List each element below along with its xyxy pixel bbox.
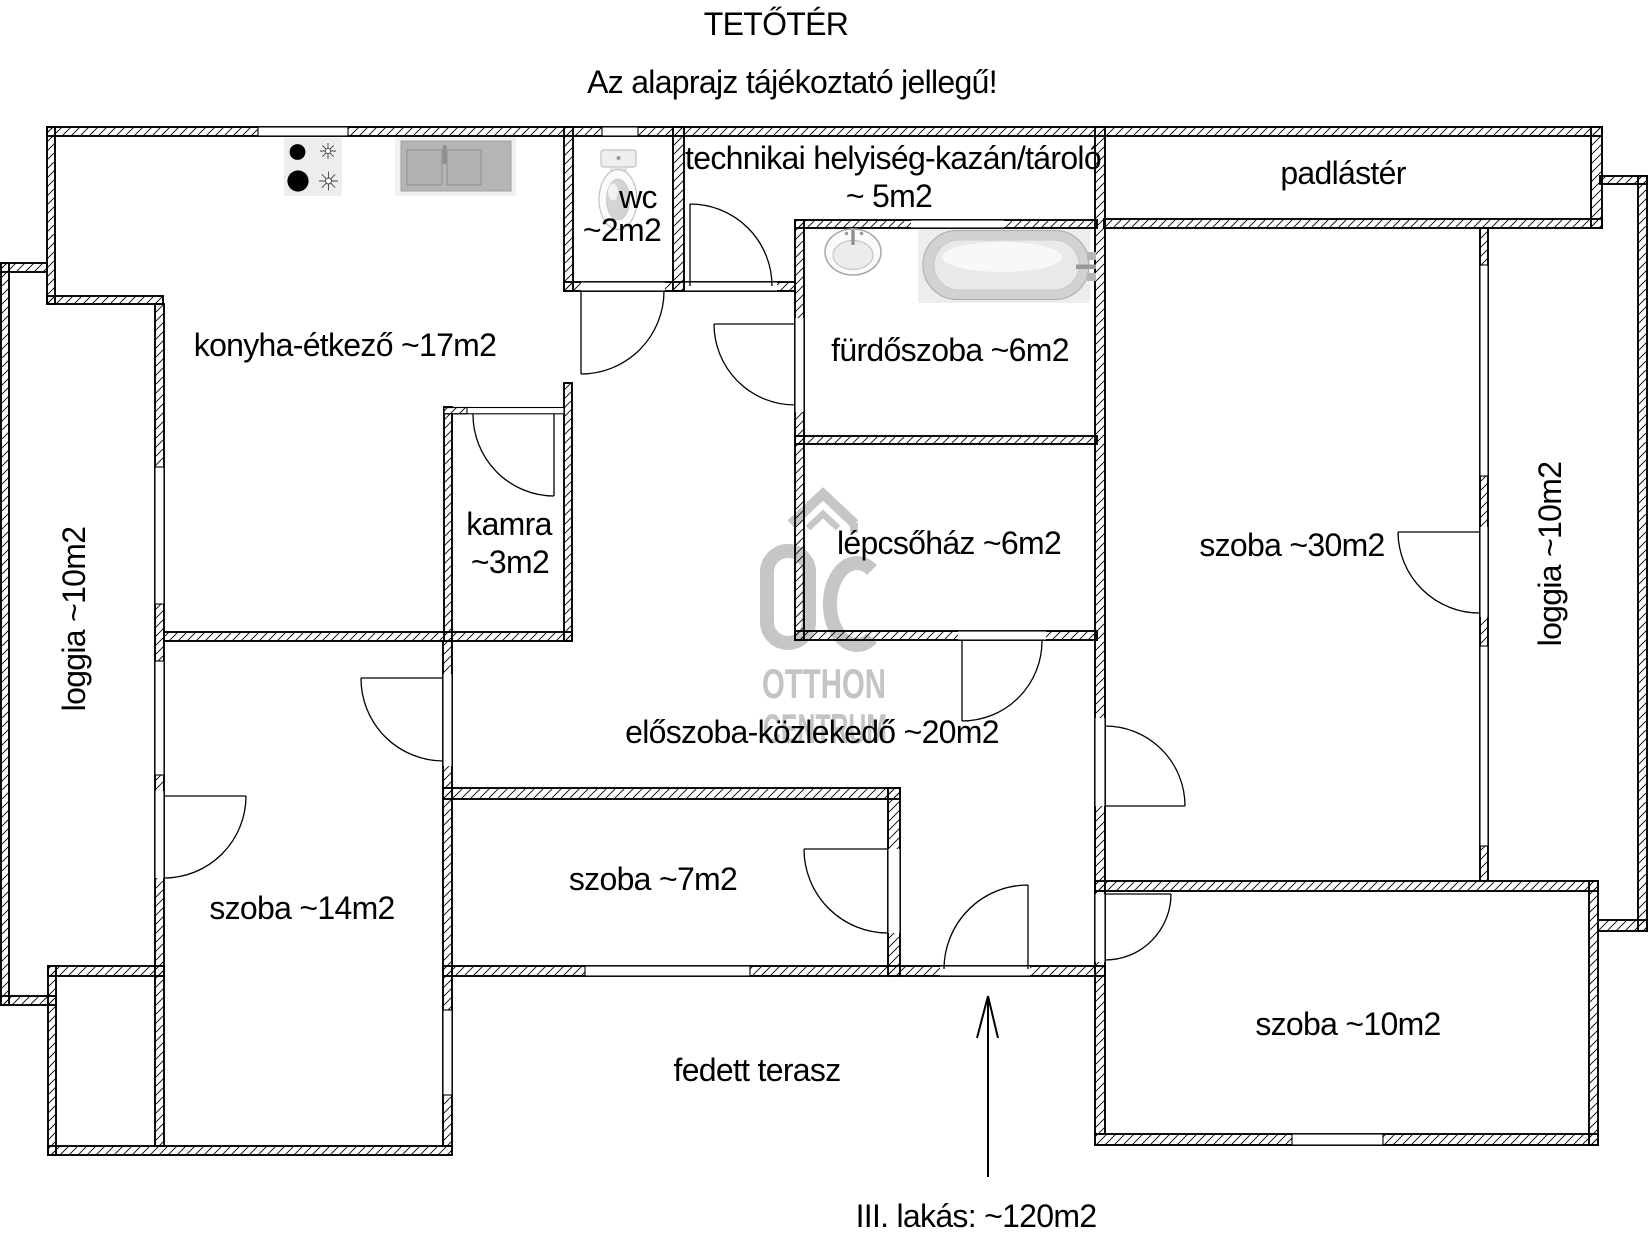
svg-text:előszoba-közlekedő ~20m2: előszoba-közlekedő ~20m2 xyxy=(625,714,999,750)
svg-text:fedett terasz: fedett terasz xyxy=(674,1052,841,1088)
svg-text:szoba ~30m2: szoba ~30m2 xyxy=(1199,527,1384,563)
svg-text:szoba ~14m2: szoba ~14m2 xyxy=(209,890,394,926)
svg-text:padlástér: padlástér xyxy=(1280,155,1406,191)
svg-text:szoba ~7m2: szoba ~7m2 xyxy=(569,861,737,897)
svg-text:kamra: kamra xyxy=(466,506,552,542)
svg-text:technikai helyiség-kazán/tárol: technikai helyiség-kazán/tároló xyxy=(685,140,1101,176)
svg-text:szoba ~10m2: szoba ~10m2 xyxy=(1255,1006,1440,1042)
svg-text:~2m2: ~2m2 xyxy=(583,212,661,248)
svg-text:loggia ~10m2: loggia ~10m2 xyxy=(56,527,92,712)
svg-text:~ 5m2: ~ 5m2 xyxy=(846,178,932,214)
svg-text:TETŐTÉR: TETŐTÉR xyxy=(704,6,848,42)
svg-text:OTTHON: OTTHON xyxy=(762,660,886,707)
svg-text:lépcsőház ~6m2: lépcsőház ~6m2 xyxy=(837,525,1061,561)
svg-text:wc: wc xyxy=(618,179,657,215)
svg-text:III. lakás: ~120m2: III. lakás: ~120m2 xyxy=(856,1198,1097,1234)
svg-text:konyha-étkező ~17m2: konyha-étkező ~17m2 xyxy=(194,327,496,363)
svg-text:fürdőszoba ~6m2: fürdőszoba ~6m2 xyxy=(831,332,1069,368)
svg-text:loggia ~10m2: loggia ~10m2 xyxy=(1532,462,1568,647)
svg-text:Az alaprajz tájékoztató jelleg: Az alaprajz tájékoztató jellegű! xyxy=(587,64,997,100)
svg-text:~3m2: ~3m2 xyxy=(471,544,549,580)
